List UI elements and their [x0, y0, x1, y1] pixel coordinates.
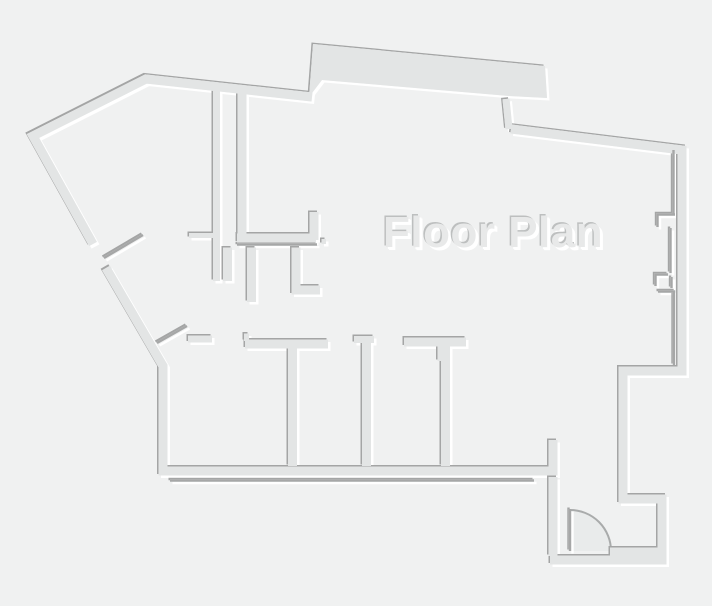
- floor-plan-canvas: [0, 0, 712, 606]
- main-walls: [33, 79, 682, 560]
- floor-plan-title: Floor Plan: [383, 211, 603, 255]
- floor-plan-page: Floor Plan: [0, 0, 712, 606]
- walls-group: [33, 44, 682, 560]
- top-slab-wall: [309, 44, 547, 98]
